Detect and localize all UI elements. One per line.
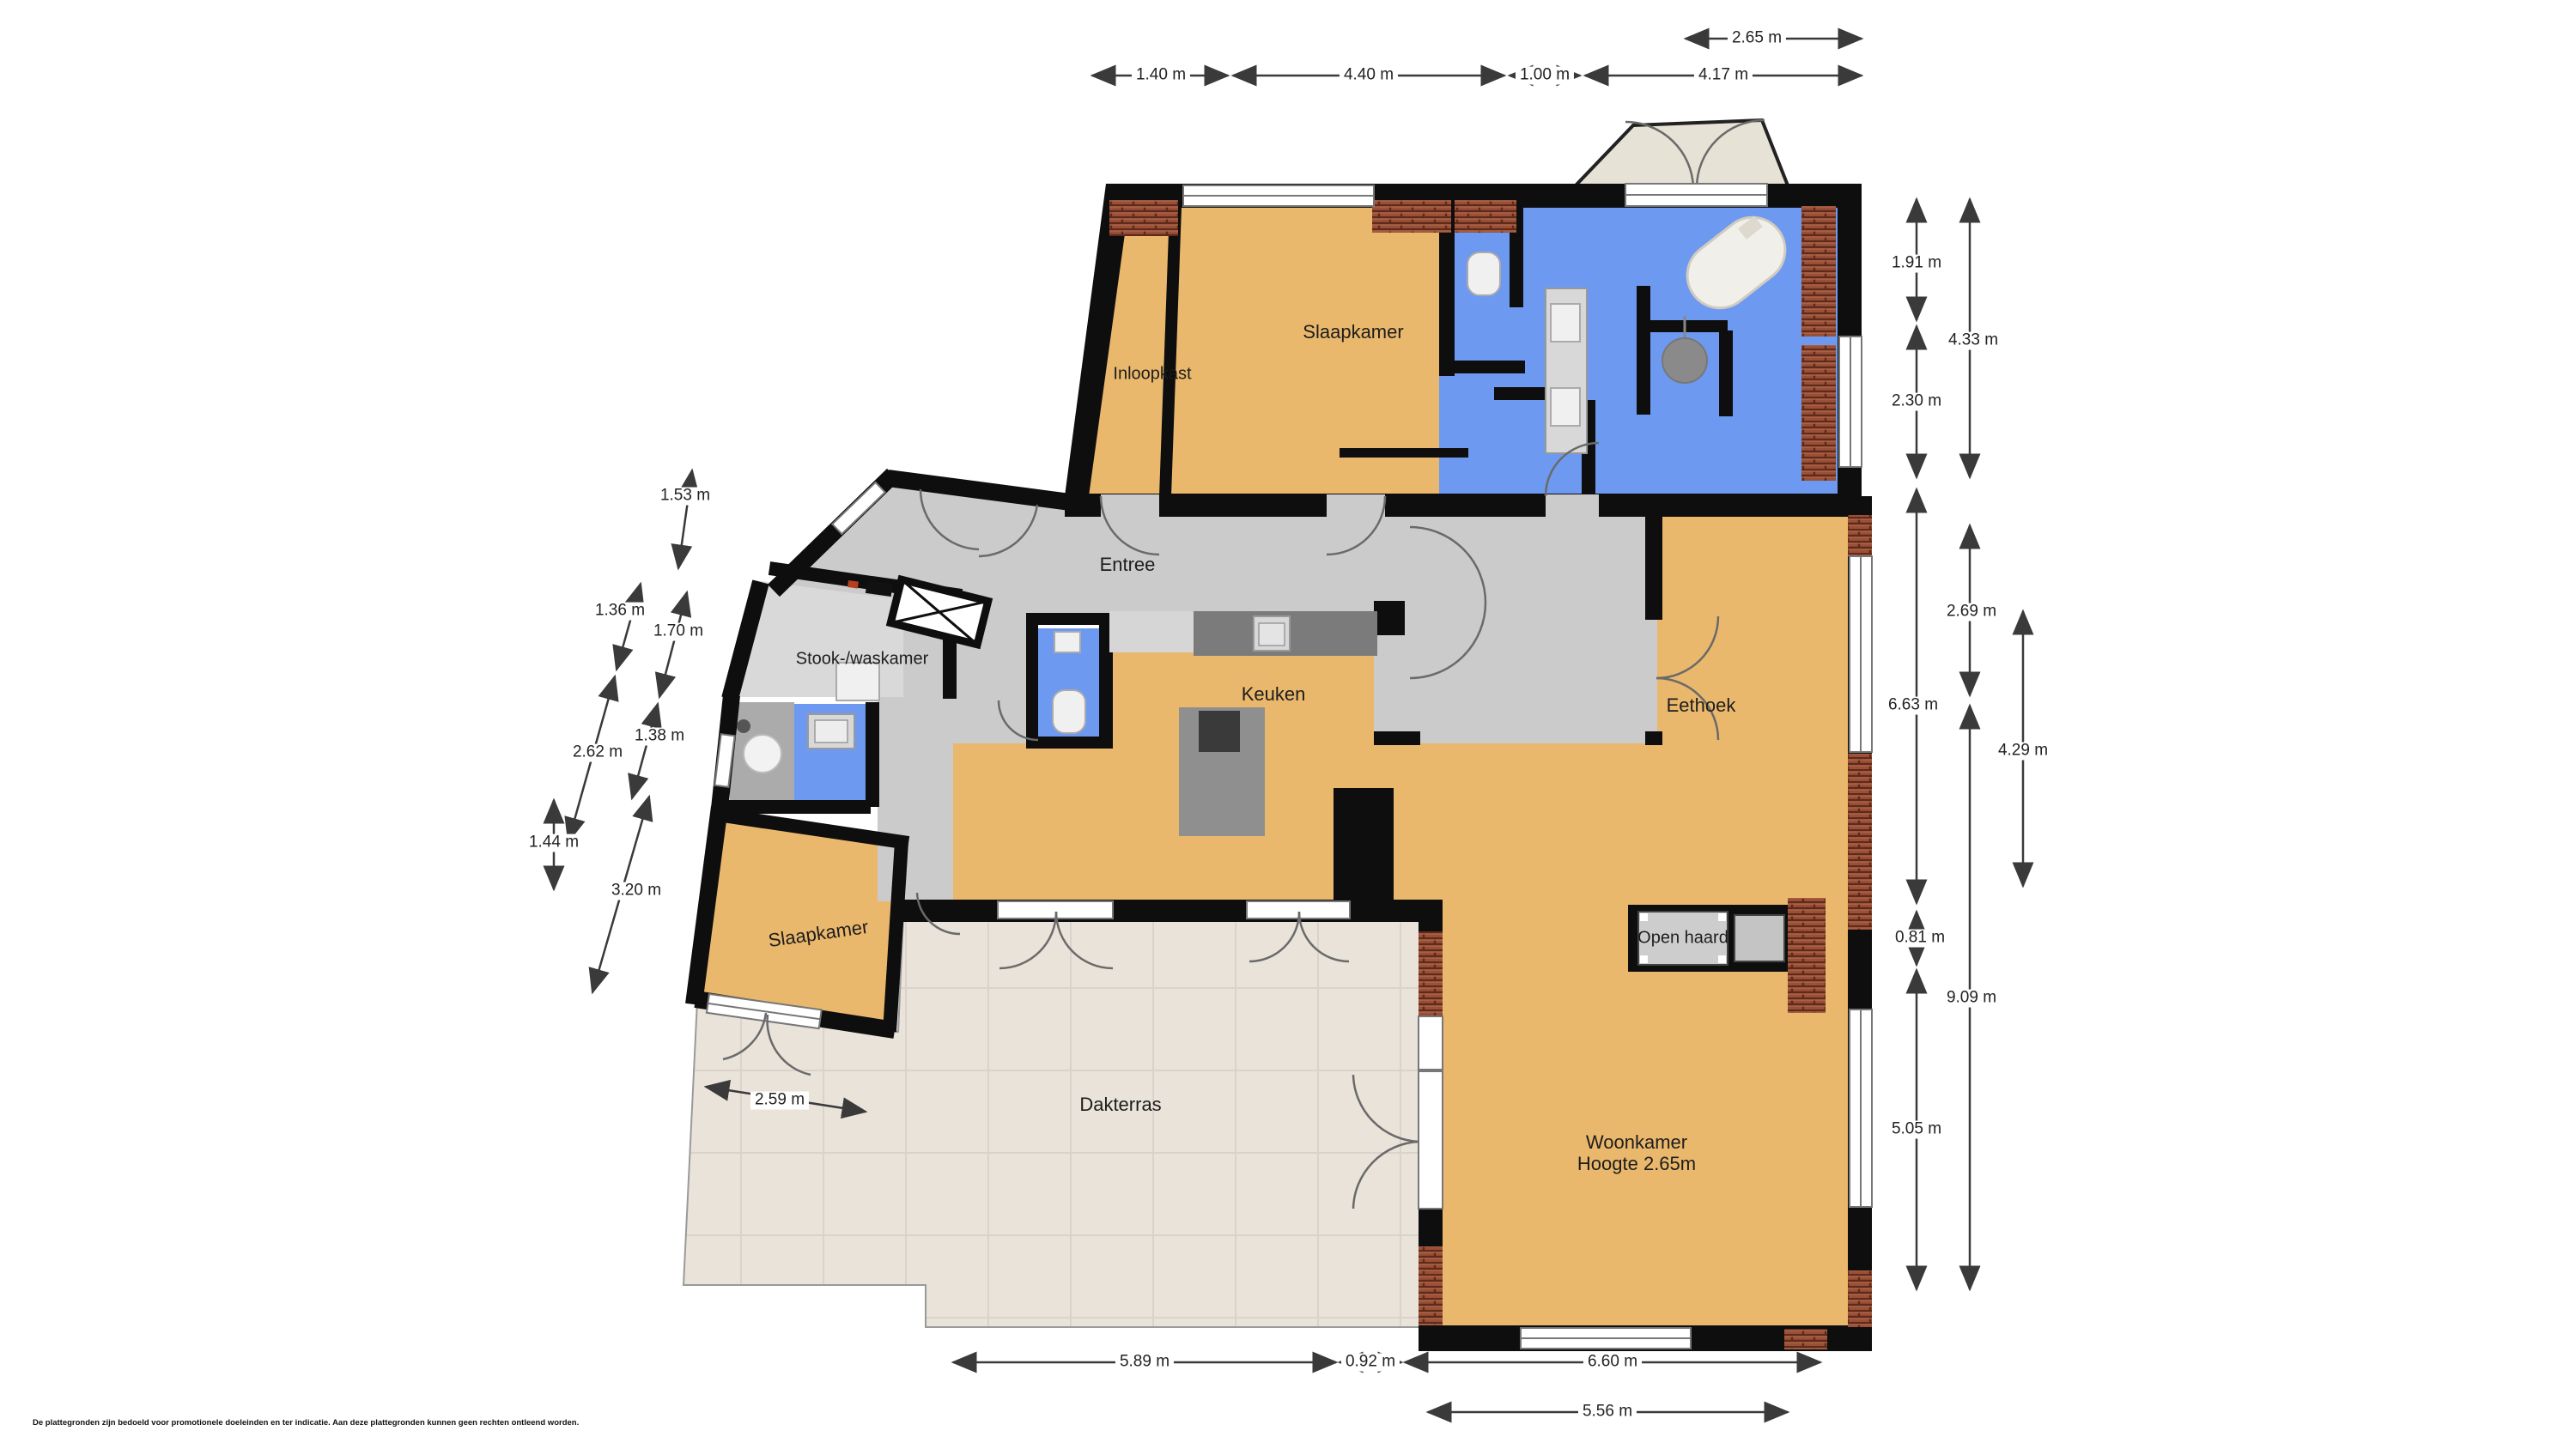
dim-right-081: 0.81 m bbox=[1891, 930, 1949, 948]
dim-left-144: 1.44 m bbox=[525, 834, 583, 852]
cooktop bbox=[1199, 711, 1240, 752]
dim-right-663: 6.63 m bbox=[1884, 697, 1942, 715]
room-label-woonkamer: Woonkamer bbox=[1586, 1131, 1687, 1154]
dim-left-320: 3.20 m bbox=[607, 882, 665, 900]
room-label-woonkamer-height: Hoogte 2.65m bbox=[1577, 1153, 1696, 1175]
disclaimer-text: De plattegronden zijn bedoeld voor promo… bbox=[33, 1418, 685, 1428]
window-bathroom-right bbox=[1839, 336, 1862, 467]
floorplan-page: Slaapkamer Inloopkast Entree Stook-/wask… bbox=[0, 0, 2576, 1449]
dim-left-262: 2.62 m bbox=[568, 744, 627, 762]
dormer bbox=[1576, 120, 1788, 187]
window-dormer-sill bbox=[1625, 184, 1767, 206]
room-label-entree: Entree bbox=[1100, 554, 1156, 576]
entree-hall-floor bbox=[987, 515, 1662, 620]
dim-top-440: 4.40 m bbox=[1340, 67, 1398, 85]
room-label-keuken: Keuken bbox=[1242, 683, 1306, 706]
utility-sink bbox=[808, 714, 854, 749]
dim-right-429: 4.29 m bbox=[1994, 743, 2052, 761]
dim-left-259: 2.59 m bbox=[750, 1092, 809, 1110]
dim-right-433: 4.33 m bbox=[1944, 332, 2002, 350]
room-label-inloopkast: Inloopkast bbox=[1113, 365, 1191, 385]
wardrobe-line bbox=[1340, 448, 1468, 458]
dim-bottom-092: 0.92 m bbox=[1341, 1354, 1400, 1372]
bathroom-vanity bbox=[1546, 288, 1587, 453]
wc-hand-basin bbox=[1054, 632, 1080, 652]
window-dining-right bbox=[1850, 556, 1872, 752]
dim-left-153: 1.53 m bbox=[656, 488, 714, 506]
dim-right-230: 2.30 m bbox=[1887, 393, 1946, 411]
toilet-wc bbox=[1053, 690, 1085, 733]
room-label-stook-waskamer: Stook-/waskamer bbox=[796, 650, 929, 670]
toilet-suite bbox=[1467, 252, 1500, 295]
dim-right-505: 5.05 m bbox=[1887, 1121, 1946, 1139]
dim-left-138: 1.38 m bbox=[630, 728, 689, 746]
kitchen-sink bbox=[1254, 616, 1290, 651]
room-label-eethoek: Eethoek bbox=[1667, 694, 1736, 717]
dim-top-265: 2.65 m bbox=[1728, 30, 1786, 48]
dim-top-417: 4.17 m bbox=[1694, 67, 1753, 85]
floorplan-drawing bbox=[0, 0, 2576, 1449]
dim-left-170: 1.70 m bbox=[649, 623, 708, 641]
dim-right-191: 1.91 m bbox=[1887, 255, 1946, 273]
window-top-bedroom bbox=[1183, 185, 1374, 206]
dim-top-100: 1.00 m bbox=[1516, 67, 1574, 85]
room-label-dakterras: Dakterras bbox=[1079, 1094, 1161, 1116]
dim-bottom-556: 5.56 m bbox=[1578, 1404, 1637, 1422]
terrace-door-threshold-living bbox=[1419, 1071, 1443, 1209]
room-label-open-haard: Open haard bbox=[1637, 929, 1728, 949]
dim-right-909: 9.09 m bbox=[1942, 990, 2001, 1008]
dim-top-140: 1.40 m bbox=[1132, 67, 1190, 85]
tap-point-marker bbox=[848, 580, 859, 589]
south-corridor-floor bbox=[878, 697, 953, 901]
dim-bottom-660: 6.60 m bbox=[1583, 1354, 1642, 1372]
room-label-slaapkamer-top: Slaapkamer bbox=[1303, 321, 1403, 343]
chimney-brick bbox=[1788, 898, 1826, 1013]
window-living-right bbox=[1850, 1009, 1872, 1207]
kitchen-cabinet bbox=[1109, 611, 1194, 652]
dim-right-269: 2.69 m bbox=[1942, 603, 2001, 621]
kitchen-floor-south bbox=[953, 743, 1394, 901]
dim-left-136: 1.36 m bbox=[591, 603, 649, 621]
drain bbox=[737, 719, 750, 733]
entree-corridor-floor bbox=[1374, 620, 1657, 743]
dim-bottom-589: 5.89 m bbox=[1115, 1354, 1174, 1372]
window-living-left bbox=[1419, 1016, 1443, 1070]
window-living-bottom bbox=[1521, 1328, 1691, 1349]
washing-machine bbox=[744, 735, 781, 773]
